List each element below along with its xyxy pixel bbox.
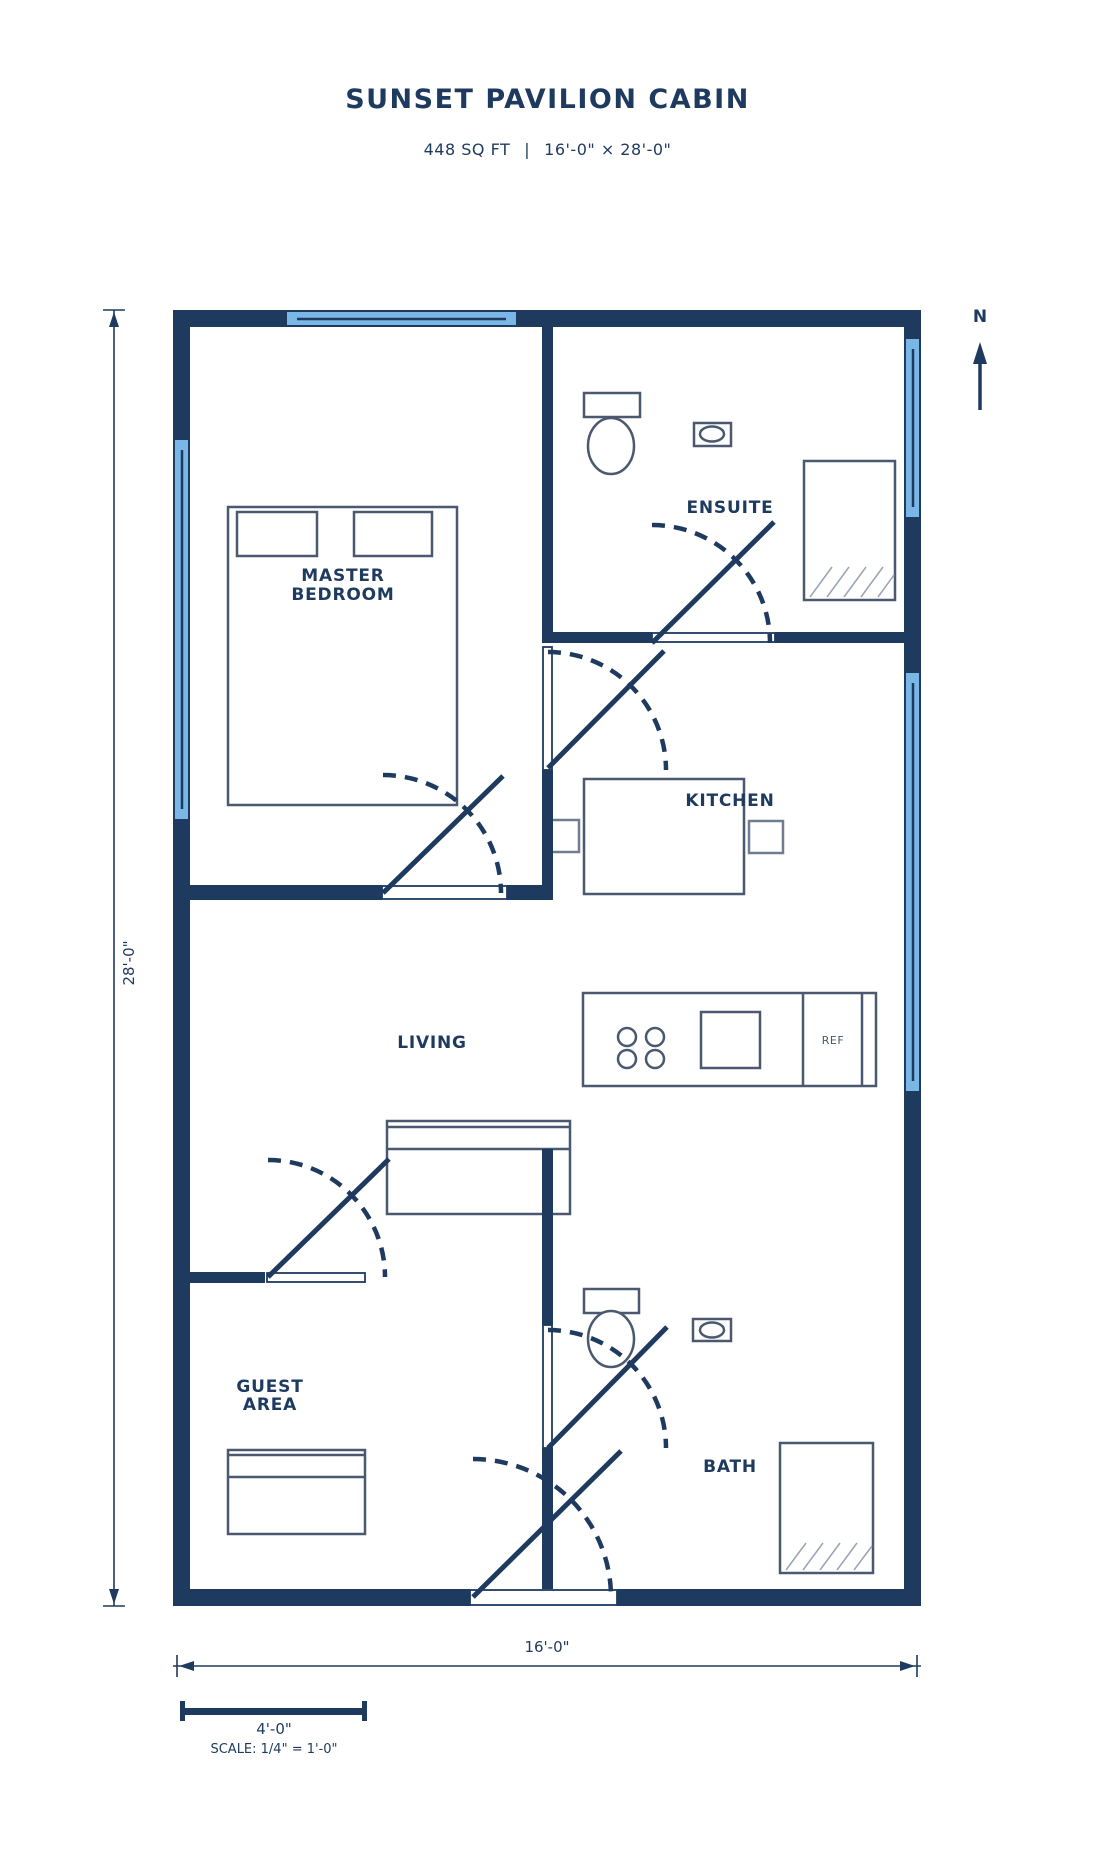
label-master-line2: BEDROOM [291, 585, 394, 605]
wall-ensuite-bottom-right [775, 632, 905, 643]
scale-bar [180, 1701, 367, 1721]
door-frame-ensuite [652, 633, 775, 642]
label-kitchen: KITCHEN [685, 791, 774, 811]
door-ensuite [652, 522, 774, 643]
toilet-bowl [588, 418, 634, 474]
sink-basin [700, 427, 724, 442]
kitchen-sink [701, 1012, 760, 1068]
shower [780, 1443, 873, 1573]
wall-guest-divider [190, 1272, 265, 1283]
door-frame-guest [267, 1273, 365, 1282]
sink-basin [700, 1323, 724, 1338]
label-bath: BATH [703, 1457, 757, 1477]
wall-master-bottom-right [507, 885, 553, 900]
bath-fixtures [584, 1289, 873, 1573]
master-bedroom-furniture [228, 507, 457, 805]
door-frame-bath [543, 1325, 552, 1448]
pillow-right [354, 512, 432, 556]
wall-living-bath-upper [542, 1149, 553, 1325]
door-frame-hall [543, 647, 552, 770]
wall-bottom-left [173, 1589, 470, 1606]
floor-plan-drawing: MASTER BEDROOM ENSUITE KITCHEN LIVING GU… [0, 0, 1095, 1871]
window-top-master [286, 311, 517, 326]
window-right-living [905, 672, 920, 1092]
wall-ensuite-bottom-left [553, 632, 652, 643]
toilet-tank [584, 1289, 639, 1313]
subtitle-separator: | [524, 140, 530, 159]
label-ensuite: ENSUITE [686, 498, 773, 518]
pillow-left [237, 512, 317, 556]
dimension-height-label: 28'-0" [120, 940, 138, 985]
wall-master-ensuite [542, 327, 553, 643]
shower [804, 461, 895, 600]
ensuite-fixtures [584, 393, 895, 600]
scale-bar-length-label: 4'-0" [256, 1720, 292, 1738]
door-hall [548, 651, 666, 770]
door-guest [268, 1159, 389, 1277]
label-guest-line1: GUEST [236, 1377, 303, 1397]
daybed [228, 1450, 365, 1534]
subtitle-area: 448 SQ FT [424, 140, 511, 159]
north-label: N [973, 307, 987, 327]
door-frame-master [382, 886, 507, 899]
page-title: SUNSET PAVILION CABIN [0, 84, 1095, 115]
toilet-tank [584, 393, 640, 417]
wall-master-hall-lower [542, 770, 553, 900]
north-arrow: N [973, 307, 987, 410]
label-master-line1: MASTER [301, 566, 384, 586]
page-subtitle: 448 SQ FT | 16'-0" × 28'-0" [0, 140, 1095, 159]
window-right-ensuite [905, 338, 920, 518]
north-arrowhead [973, 342, 987, 364]
window-left-master [174, 439, 189, 820]
label-fridge: REF [822, 1034, 844, 1047]
wall-bottom-right [617, 1589, 921, 1606]
scale-bar-scale-label: SCALE: 1/4" = 1'-0" [210, 1742, 337, 1757]
chair-right [749, 821, 783, 853]
dimension-width [173, 1655, 921, 1677]
floor-plan-page: SUNSET PAVILION CABIN 448 SQ FT | 16'-0"… [0, 0, 1095, 1871]
guest-furniture [228, 1450, 365, 1534]
subtitle-size: 16'-0" × 28'-0" [544, 140, 671, 159]
door-frame-entry [470, 1590, 617, 1605]
dimension-width-label: 16'-0" [524, 1638, 569, 1656]
label-living: LIVING [397, 1033, 467, 1053]
wall-master-bottom-left [190, 885, 382, 900]
label-guest-line2: AREA [243, 1395, 297, 1415]
